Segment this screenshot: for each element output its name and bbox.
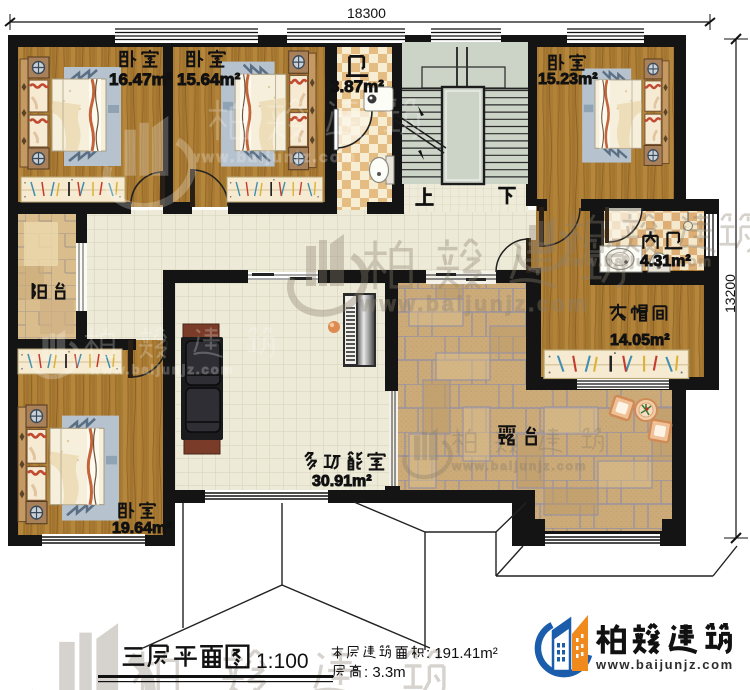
svg-text:www.baijunjz.com: www.baijunjz.com bbox=[359, 293, 589, 316]
svg-text:3.87m²: 3.87m² bbox=[330, 77, 384, 96]
svg-text:15.23m²: 15.23m² bbox=[538, 71, 598, 88]
svg-text:4.31m²: 4.31m² bbox=[640, 253, 691, 270]
svg-text:1:100: 1:100 bbox=[256, 650, 309, 673]
svg-text:18300: 18300 bbox=[347, 5, 386, 21]
svg-text:www.baijunjz.com: www.baijunjz.com bbox=[89, 362, 234, 377]
svg-text:: 3.3m: : 3.3m bbox=[364, 664, 406, 681]
svg-text:www.baijunjz.com: www.baijunjz.com bbox=[451, 459, 588, 473]
svg-text:19.64m²: 19.64m² bbox=[112, 520, 172, 537]
svg-text:13200: 13200 bbox=[722, 274, 738, 313]
svg-text:: 191.41m²: : 191.41m² bbox=[426, 645, 498, 662]
svg-text:30.91m²: 30.91m² bbox=[312, 473, 372, 490]
svg-text:16.47m²: 16.47m² bbox=[109, 70, 173, 89]
svg-text:www.baijunjz.com: www.baijunjz.com bbox=[187, 149, 357, 166]
svg-text:14.05m²: 14.05m² bbox=[610, 332, 670, 349]
svg-text:www.baijunjz.com: www.baijunjz.com bbox=[595, 657, 734, 672]
svg-text:15.64m²: 15.64m² bbox=[177, 70, 241, 89]
